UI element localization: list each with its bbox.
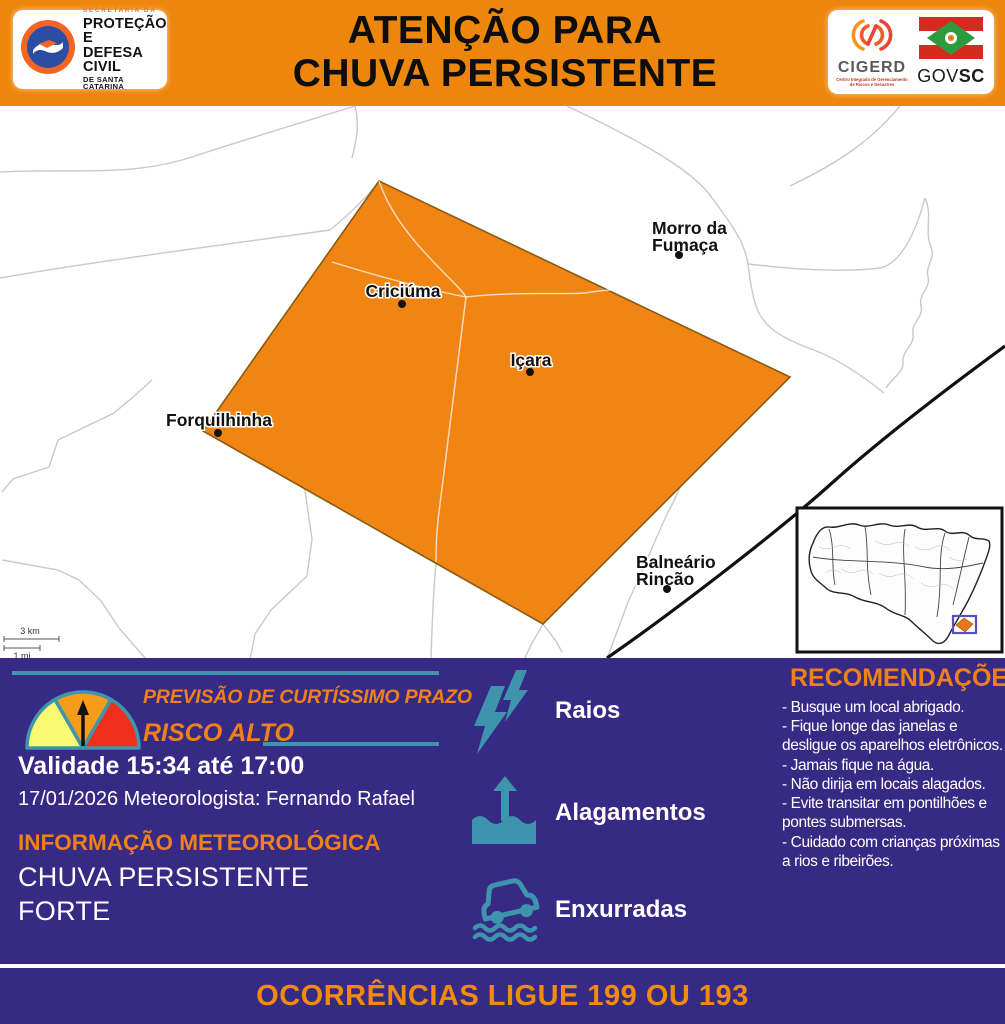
risk-gauge-icon	[22, 688, 144, 757]
title-line-1: ATENÇÃO PARA	[240, 10, 770, 53]
scale-km-label: 3 km	[20, 626, 40, 636]
alert-map: Criciúma Içara Morro da Fumaça Forquilhi…	[0, 106, 1005, 659]
city-label-forquilhinha: Forquilhinha	[166, 410, 272, 430]
city-label-morro-line2: Fumaça	[652, 235, 718, 255]
hazard-label-raios: Raios	[555, 697, 620, 725]
defesa-civil-emblem-icon	[19, 18, 77, 81]
inset-map	[797, 508, 1002, 652]
recommendation-item: - Fique longe das janelas e desligue os …	[782, 717, 1004, 755]
defesa-label: DEFESA CIVIL	[83, 46, 167, 75]
city-morro-da-fumaca: Morro da Fumaça	[652, 218, 727, 259]
recommendations-list: - Busque um local abrigado. - Fique long…	[782, 698, 1004, 871]
cigerd-icon	[849, 40, 895, 57]
santa-catarina-label: DE SANTA CATARINA	[83, 76, 167, 91]
hazard-label-enxurradas: Enxurradas	[555, 896, 687, 924]
forecast-title: PREVISÃO DE CURTÍSSIMO PRAZO	[143, 686, 472, 709]
cigerd-subtitle: Centro Integrado de Gerenciamento de Ris…	[835, 77, 909, 87]
recommendation-item: - Evite transitar em pontilhões e pontes…	[782, 794, 1004, 832]
city-dot-balneario	[663, 585, 671, 593]
recommendation-item: - Não dirija em locais alagados.	[782, 775, 1004, 794]
panel-top-rule	[12, 671, 439, 675]
meteorologist-text: 17/01/2026 Meteorologista: Fernando Rafa…	[18, 788, 415, 811]
recommendation-item: - Cuidado com crianças próximas a rios e…	[782, 833, 1004, 871]
validity-text: Validade 15:34 até 17:00	[18, 752, 304, 781]
recommendations-title: RECOMENDAÇÕES	[790, 664, 1005, 693]
city-dot-forquilhinha	[214, 429, 222, 437]
cigerd-label: CIGERD	[835, 59, 909, 77]
alert-bulletin: ATENÇÃO PARA CHUVA PERSISTENTE SECRETARI…	[0, 0, 1005, 1024]
secretaria-label: SECRETARIA DA	[83, 8, 167, 15]
recommendation-item: - Jamais fique na água.	[782, 756, 1004, 775]
emergency-phone-text: OCORRÊNCIAS LIGUE 199 OU 193	[256, 980, 749, 1013]
santa-catarina-flag-icon	[919, 46, 983, 63]
weather-info-title: INFORMAÇÃO METEOROLÓGICA	[18, 830, 380, 856]
footer-bar: OCORRÊNCIAS LIGUE 199 OU 193	[0, 968, 1005, 1024]
city-label-icara: Içara	[511, 350, 552, 370]
lightning-icon	[474, 670, 538, 759]
defesa-civil-text: SECRETARIA DA PROTEÇÃO E DEFESA CIVIL DE…	[83, 8, 167, 91]
city-label-criciuma: Criciúma	[366, 281, 441, 301]
weather-info-line1: CHUVA PERSISTENTE	[18, 862, 309, 893]
sc-part: SC	[959, 66, 985, 86]
header-banner: ATENÇÃO PARA CHUVA PERSISTENTE SECRETARI…	[0, 0, 1005, 106]
protecao-label: PROTEÇÃO E	[83, 17, 167, 46]
cigerd-logo: CIGERD Centro Integrado de Gerenciamento…	[835, 17, 909, 87]
govsc-label: GOVSC	[915, 66, 987, 87]
city-dot-criciuma	[398, 300, 406, 308]
city-dot-icara	[526, 368, 534, 376]
flash-flood-icon	[472, 868, 546, 947]
page-title: ATENÇÃO PARA CHUVA PERSISTENTE	[240, 10, 770, 96]
risk-underline-rule	[263, 742, 439, 746]
city-dot-morro	[675, 251, 683, 259]
hazard-label-alagamentos: Alagamentos	[555, 799, 706, 827]
title-line-2: CHUVA PERSISTENTE	[240, 53, 770, 96]
defesa-civil-logo: SECRETARIA DA PROTEÇÃO E DEFESA CIVIL DE…	[13, 10, 167, 89]
flood-icon	[470, 774, 540, 851]
recommendation-item: - Busque um local abrigado.	[782, 698, 1004, 717]
weather-info-line2: FORTE	[18, 896, 111, 927]
govsc-logo: GOVSC	[915, 17, 987, 87]
gov-part: GOV	[917, 66, 959, 86]
government-logos: CIGERD Centro Integrado de Gerenciamento…	[828, 10, 994, 94]
